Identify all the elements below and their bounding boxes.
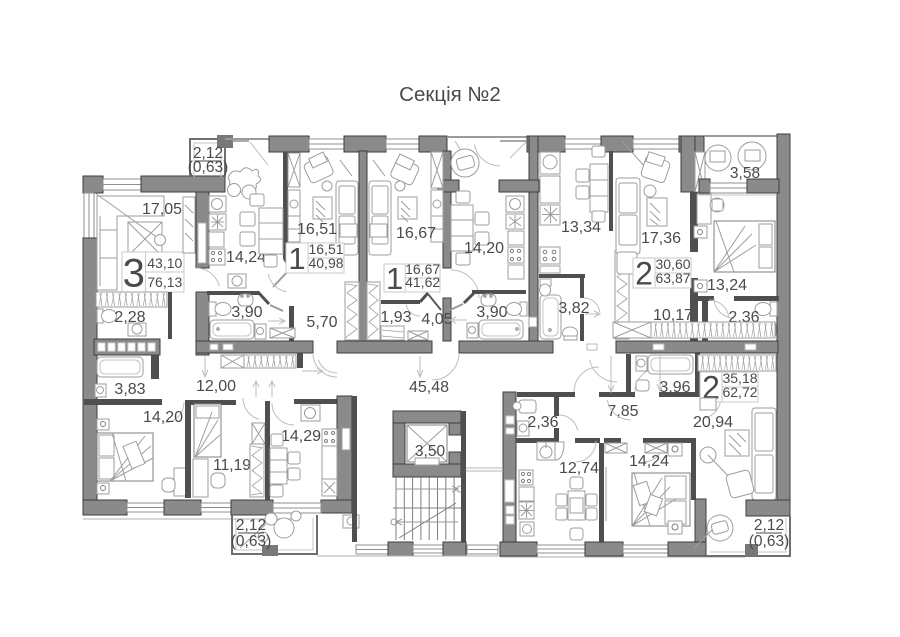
svg-text:13,24: 13,24 <box>707 277 747 294</box>
svg-text:3,90: 3,90 <box>476 304 507 321</box>
svg-text:(0,63): (0,63) <box>749 533 790 550</box>
svg-text:14,20: 14,20 <box>464 240 504 257</box>
svg-text:1: 1 <box>386 261 403 296</box>
svg-text:40,98: 40,98 <box>308 255 343 271</box>
svg-text:14,29: 14,29 <box>281 428 321 445</box>
svg-text:5,70: 5,70 <box>306 314 337 331</box>
svg-text:3,96: 3,96 <box>659 379 690 396</box>
svg-text:76,13: 76,13 <box>147 274 182 290</box>
svg-text:4,05: 4,05 <box>421 311 452 328</box>
svg-text:(0,63): (0,63) <box>231 533 272 550</box>
svg-text:3,58: 3,58 <box>730 165 760 182</box>
svg-text:Секція №2: Секція №2 <box>399 83 501 106</box>
svg-text:3: 3 <box>123 251 145 295</box>
svg-text:3,83: 3,83 <box>114 381 145 398</box>
svg-text:14,20: 14,20 <box>143 409 183 426</box>
svg-text:11,19: 11,19 <box>213 457 251 474</box>
svg-text:10,17: 10,17 <box>653 307 693 324</box>
svg-text:16,51: 16,51 <box>297 221 337 238</box>
svg-text:17,05: 17,05 <box>142 201 182 218</box>
svg-text:(0,63): (0,63) <box>188 159 229 176</box>
svg-text:20,94: 20,94 <box>693 414 733 431</box>
svg-text:1: 1 <box>288 241 305 276</box>
svg-text:62,72: 62,72 <box>722 384 757 400</box>
svg-text:2,12: 2,12 <box>236 517 266 534</box>
svg-text:2,28: 2,28 <box>114 309 145 326</box>
svg-text:16,67: 16,67 <box>396 225 436 242</box>
svg-text:12,74: 12,74 <box>559 460 599 477</box>
svg-text:2: 2 <box>635 256 653 292</box>
svg-text:45,48: 45,48 <box>409 379 449 396</box>
svg-text:3,82: 3,82 <box>558 300 589 317</box>
svg-text:3,50: 3,50 <box>415 443 446 460</box>
svg-text:63,87: 63,87 <box>655 270 690 286</box>
svg-text:17,36: 17,36 <box>641 230 681 247</box>
svg-text:1,93: 1,93 <box>380 309 411 326</box>
svg-text:2,36: 2,36 <box>527 414 558 431</box>
svg-text:2,12: 2,12 <box>754 517 784 534</box>
svg-text:14,24: 14,24 <box>629 453 669 470</box>
svg-text:12,00: 12,00 <box>196 378 236 395</box>
svg-text:43,10: 43,10 <box>147 255 182 271</box>
svg-text:3,90: 3,90 <box>231 304 262 321</box>
svg-text:41,62: 41,62 <box>405 274 440 290</box>
